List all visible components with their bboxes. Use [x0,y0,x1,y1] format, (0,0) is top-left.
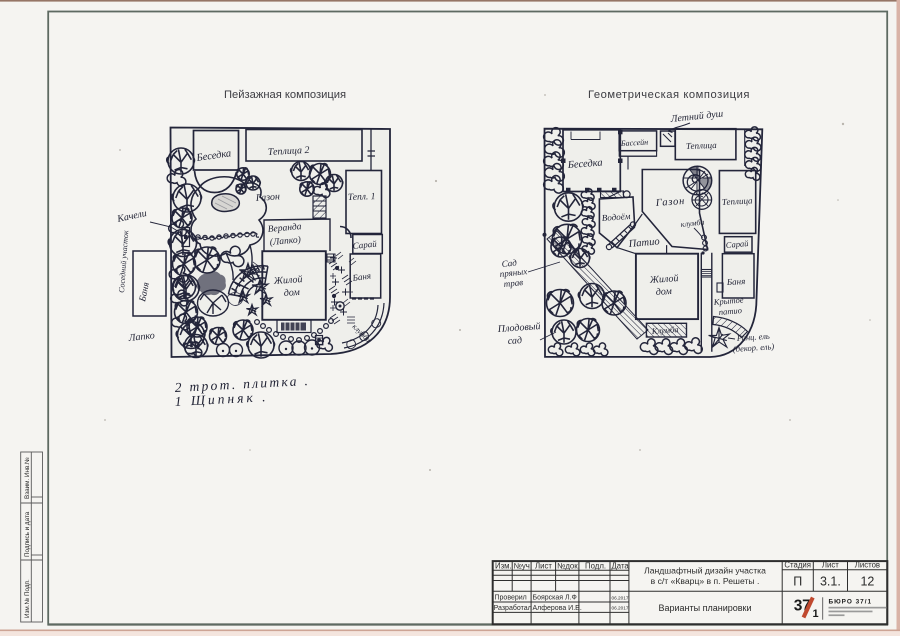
svg-text:1: 1 [813,608,819,620]
svg-text:Проверил: Проверил [495,595,527,602]
svg-text:Варианты планировки: Варианты планировки [659,603,752,613]
svg-text:Теплица: Теплица [722,195,754,207]
svg-text:Лист: Лист [535,561,552,570]
svg-text:Алферова И.Е.: Алферова И.Е. [533,605,582,612]
svg-text:Тепл. 1: Тепл. 1 [348,192,376,203]
svg-text:Изм.: Изм. [495,561,512,570]
svg-text:Подпись и дата: Подпись и дата [24,511,31,557]
svg-text:Бассейн: Бассейн [620,138,649,148]
svg-text:патио: патио [718,305,742,317]
svg-text:Жилой: Жилой [648,273,678,286]
svg-text:БЮРО 37/1: БЮРО 37/1 [829,599,873,606]
svg-text:Сарай: Сарай [725,238,749,250]
svg-text:Жилой: Жилой [272,274,302,287]
svg-text:Разработал: Разработал [494,604,532,612]
svg-text:Газон: Газон [254,191,280,204]
svg-text:П: П [793,575,802,589]
svg-text:Теплица 2: Теплица 2 [268,145,310,158]
svg-text:Стадия: Стадия [784,561,811,570]
svg-text:Баня: Баня [726,276,746,287]
svg-text:Изм.№ Подп.: Изм.№ Подп. [24,579,31,618]
svg-text:Боярская Л.Ф: Боярская Л.Ф [533,595,577,602]
svg-text:Дата: Дата [612,561,630,570]
svg-text:трав: трав [503,277,523,289]
svg-text:Подл.: Подл. [585,561,606,570]
svg-text:Пейзажная композиция: Пейзажная композиция [224,89,346,101]
svg-text:Геометрическая композиция: Геометрическая композиция [588,89,750,101]
svg-text:12: 12 [860,575,874,589]
svg-text:Водоём: Водоём [601,211,631,223]
svg-text:06.2017: 06.2017 [612,595,629,600]
svg-text:дом: дом [283,287,300,299]
svg-text:Теплица: Теплица [686,140,718,151]
svg-text:№док.: №док. [557,561,580,570]
svg-text:№уч.: №уч. [514,561,533,570]
svg-text:Лист: Лист [822,561,839,570]
svg-text:06.2017: 06.2017 [612,606,629,611]
svg-text:3.1.: 3.1. [820,575,841,589]
svg-text:Взаим. Инв.№: Взаим. Инв.№ [24,457,31,499]
svg-text:в с/т «Кварц» в п. Решеты .: в с/т «Кварц» в п. Решеты . [651,576,760,586]
svg-text:дом: дом [655,286,672,298]
svg-text:Листов: Листов [855,561,880,570]
svg-text:Ландшафтный дизайн участка: Ландшафтный дизайн участка [644,566,766,576]
svg-text:Газон: Газон [654,196,685,209]
svg-text:сад: сад [507,335,522,347]
svg-text:Клумба: Клумба [650,324,678,336]
